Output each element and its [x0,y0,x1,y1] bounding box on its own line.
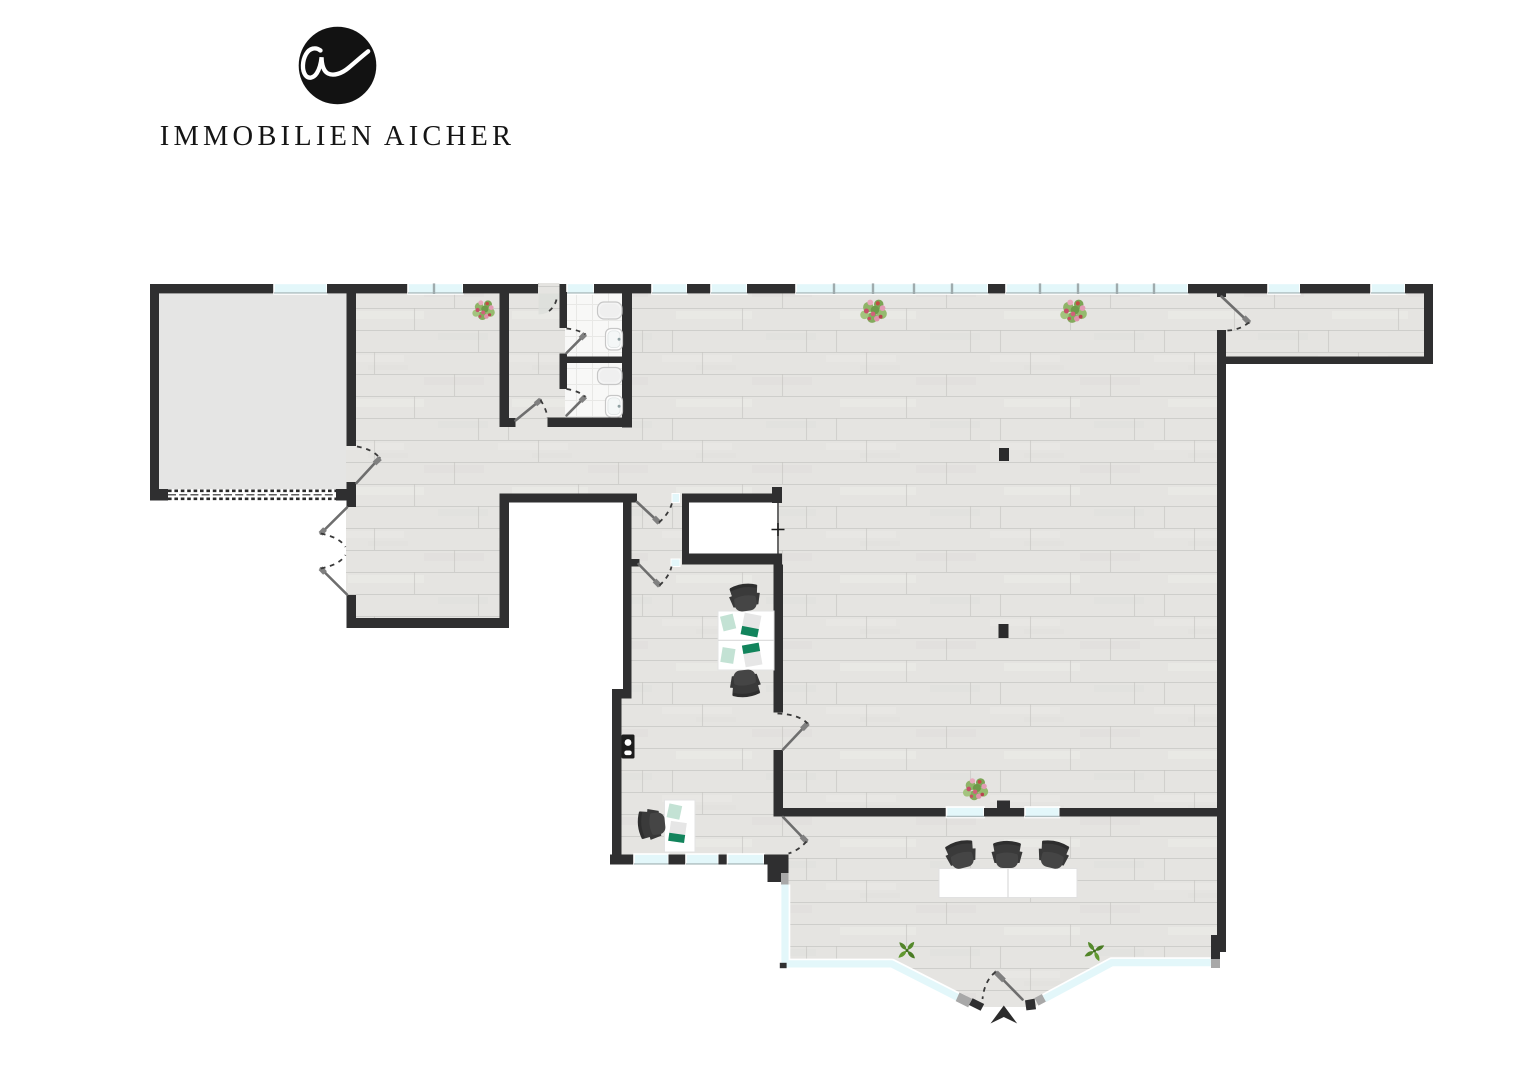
svg-text:IMMOBILIENAICHER: IMMOBILIENAICHER [160,121,515,152]
